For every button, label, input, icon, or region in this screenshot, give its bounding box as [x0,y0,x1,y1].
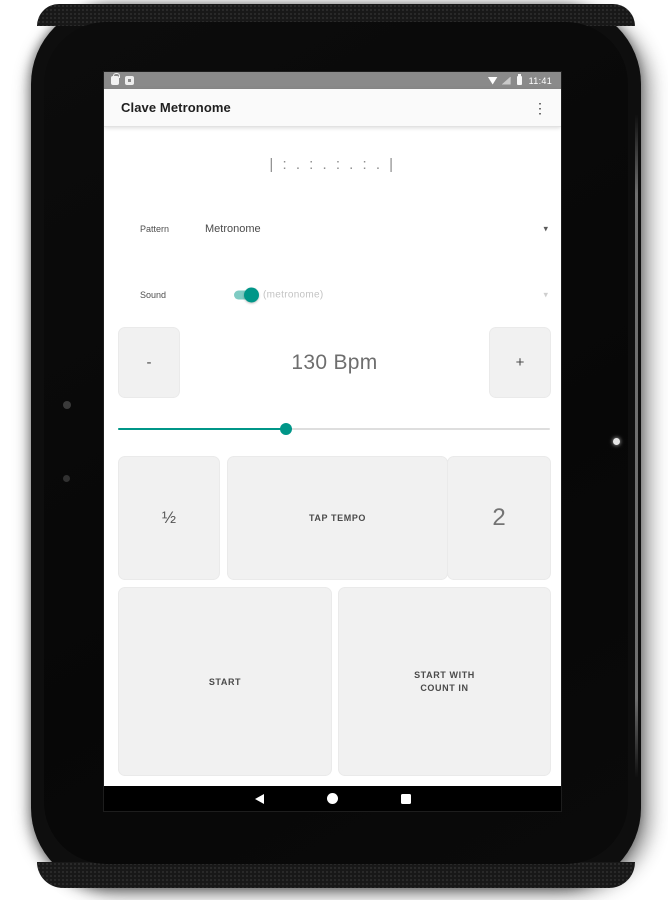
sound-select-value[interactable]: (metronome) [263,290,324,301]
clock-text: 11:41 [529,76,552,86]
status-bar: 11:41 [104,72,561,89]
sound-toggle[interactable] [234,290,258,301]
tempo-modifier-row: ½ TAP TEMPO 2 [118,456,551,580]
sound-label: Sound [140,290,166,300]
clave-pattern-display: | : . : . : . : . | [104,153,561,177]
pattern-label: Pattern [140,224,169,234]
sound-toggle-thumb [244,288,259,303]
navigation-bar [104,786,561,811]
speaker-mesh-bottom [37,862,635,888]
decrease-bpm-button[interactable]: - [118,327,180,398]
status-notification-area [111,76,134,85]
app-toolbar: Clave Metronome ⋮ [104,89,561,127]
chevron-down-icon[interactable]: ▾ [543,224,548,235]
device-edge-highlight [635,114,638,778]
battery-icon [517,76,522,85]
notification-bag-icon [111,76,119,85]
double-tempo-button[interactable]: 2 [447,456,551,580]
start-buttons-row: START START WITH COUNT IN [118,587,551,776]
bpm-value: 130 Bpm [180,327,489,398]
pattern-select-value[interactable]: Metronome [205,223,261,235]
increase-bpm-button[interactable]: + [489,327,551,398]
notification-app-icon [125,76,134,85]
pattern-row[interactable]: Pattern Metronome ▾ [118,219,551,239]
sound-row[interactable]: Sound (metronome) ▾ [118,285,551,305]
tempo-slider-thumb[interactable] [280,423,292,435]
bezel-sensor-dot [63,401,71,409]
half-tempo-button[interactable]: ½ [118,456,220,580]
front-camera-icon [613,438,620,445]
screenshot-stage: 11:41 Clave Metronome ⋮ | : . : . : . : … [0,0,668,900]
cellular-icon [502,77,511,85]
back-icon[interactable] [255,794,264,804]
tempo-stepper-row: - 130 Bpm + [118,327,551,398]
android-screen: 11:41 Clave Metronome ⋮ | : . : . : . : … [104,72,561,811]
app-title: Clave Metronome [121,100,529,115]
overflow-menu-icon[interactable]: ⋮ [529,99,551,117]
tap-tempo-button[interactable]: TAP TEMPO [227,456,448,580]
status-system-area: 11:41 [488,76,552,86]
home-icon[interactable] [327,793,338,804]
tempo-slider-fill [118,428,286,430]
start-with-count-in-button[interactable]: START WITH COUNT IN [338,587,551,776]
wifi-icon [488,77,498,85]
recents-icon[interactable] [401,794,411,804]
start-button[interactable]: START [118,587,332,776]
chevron-down-icon[interactable]: ▾ [543,290,548,301]
tempo-slider[interactable] [118,423,551,435]
bezel-sensor-dot [63,475,70,482]
